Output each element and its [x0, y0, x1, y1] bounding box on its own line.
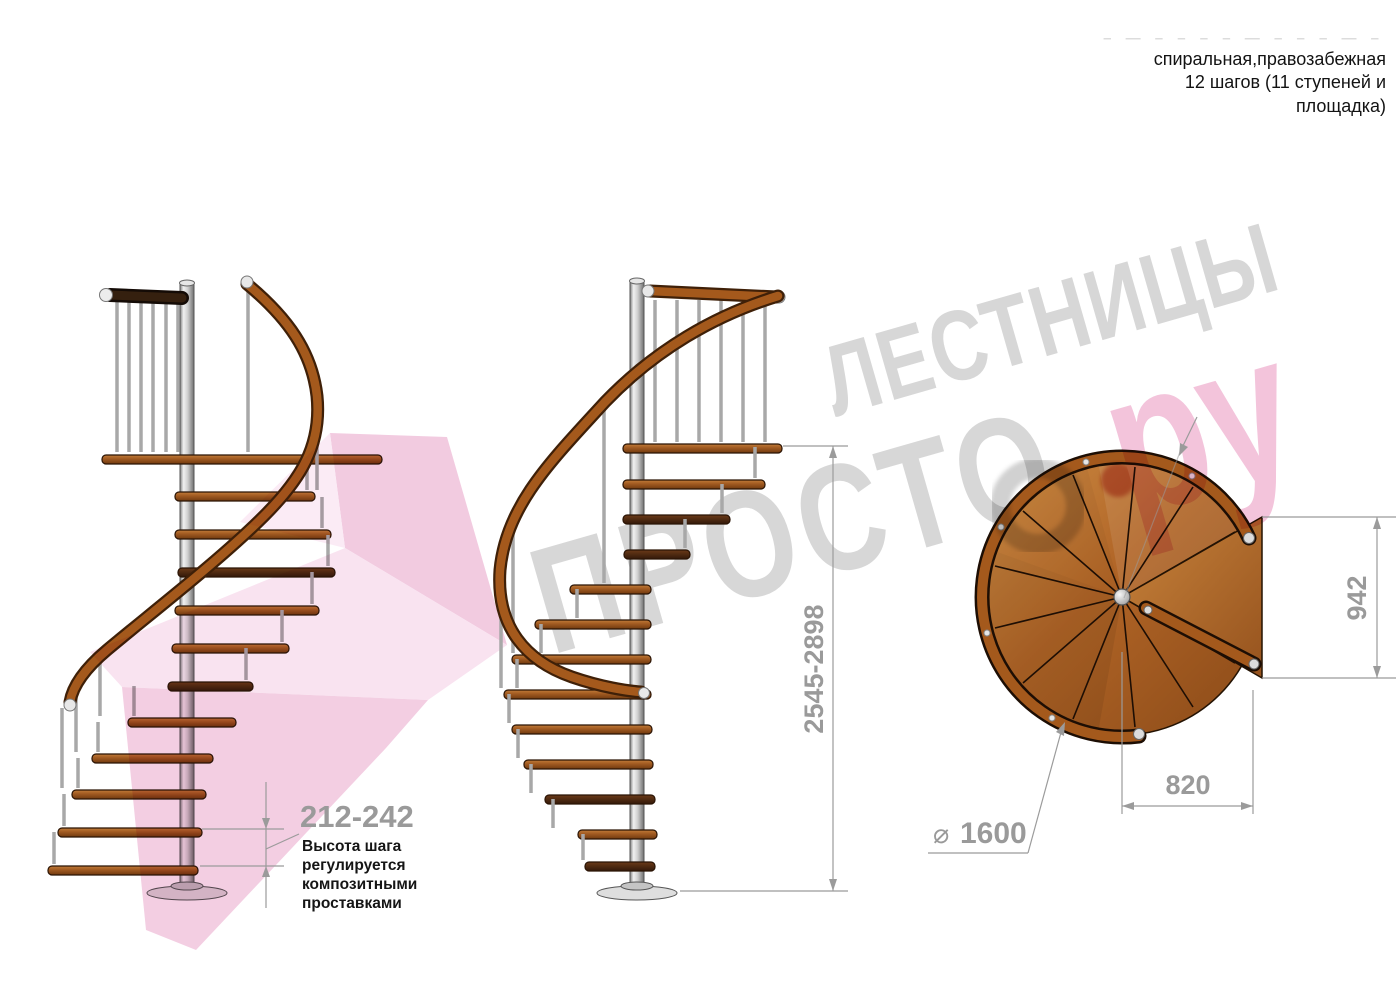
- handrail-bottom-cap: [64, 699, 76, 711]
- handrail-start-cap: [241, 276, 253, 288]
- baluster-mark: [1083, 459, 1089, 465]
- handrail-end-cap: [1134, 729, 1145, 740]
- handrail-end-cap: [100, 289, 113, 302]
- pole-top-cap: [180, 280, 195, 286]
- landing-board: [623, 444, 782, 453]
- step-height-value: 212-242: [300, 799, 414, 834]
- tread: [585, 862, 655, 871]
- tread: [623, 515, 730, 524]
- landing-depth-value: 942: [1342, 575, 1372, 620]
- total-height-value: 2545-2898: [799, 604, 829, 733]
- note-line: проставками: [302, 895, 402, 912]
- handrail-end-cap: [1249, 659, 1259, 669]
- center-staircase-side-view: [500, 278, 785, 900]
- landing-handrail: [100, 289, 183, 302]
- plan-width-value: 820: [1165, 770, 1210, 800]
- tread: [578, 830, 657, 839]
- tread: [545, 795, 655, 804]
- note-line: Высота шага: [302, 838, 402, 855]
- handrail-end-cap: [642, 285, 654, 297]
- tread: [570, 585, 651, 594]
- tread: [512, 725, 652, 734]
- note-line: композитными: [302, 876, 417, 893]
- baluster-mark: [1144, 606, 1152, 614]
- baluster-mark: [1049, 715, 1055, 721]
- baluster-mark: [984, 630, 990, 636]
- step-height-note: Высота шага регулируется композитными пр…: [302, 838, 417, 912]
- diameter-symbol: ⌀: [933, 819, 949, 849]
- drawing-canvas: – — – – – – — – – – — – спиральная,право…: [0, 0, 1400, 1000]
- pink-ribbon-watermark: [90, 433, 507, 950]
- handrail-end-cap: [1244, 533, 1255, 544]
- tread: [624, 550, 690, 559]
- center-pole-plan: [1114, 589, 1130, 605]
- handrail-bottom-cap: [639, 688, 650, 699]
- staircase-drawing: 212-242 Высота шага регулируется компози…: [0, 0, 1400, 1000]
- pole-top-cap: [630, 278, 645, 284]
- tread: [623, 480, 765, 489]
- tread: [524, 760, 653, 769]
- diameter-value: 1600: [960, 817, 1027, 850]
- note-line: регулируется: [302, 857, 405, 874]
- tread: [535, 620, 651, 629]
